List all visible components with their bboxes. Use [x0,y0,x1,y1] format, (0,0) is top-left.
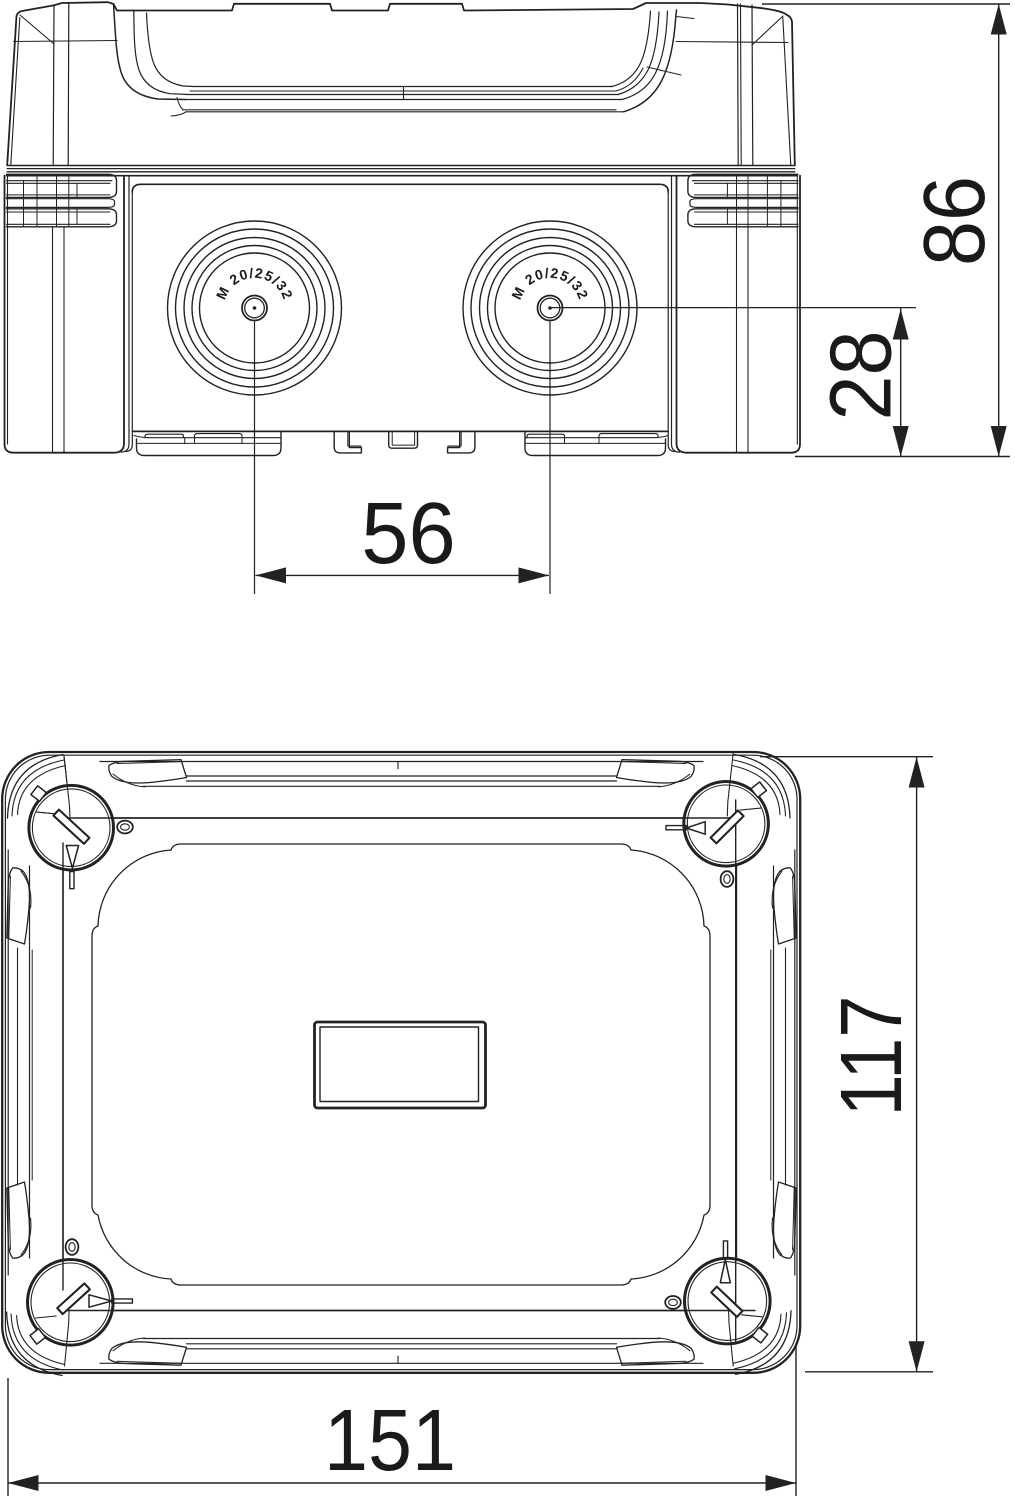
svg-text:151: 151 [324,1392,456,1489]
svg-text:28: 28 [813,331,910,421]
svg-text:86: 86 [906,176,1003,266]
svg-text:56: 56 [361,485,456,582]
svg-text:117: 117 [823,996,920,1117]
